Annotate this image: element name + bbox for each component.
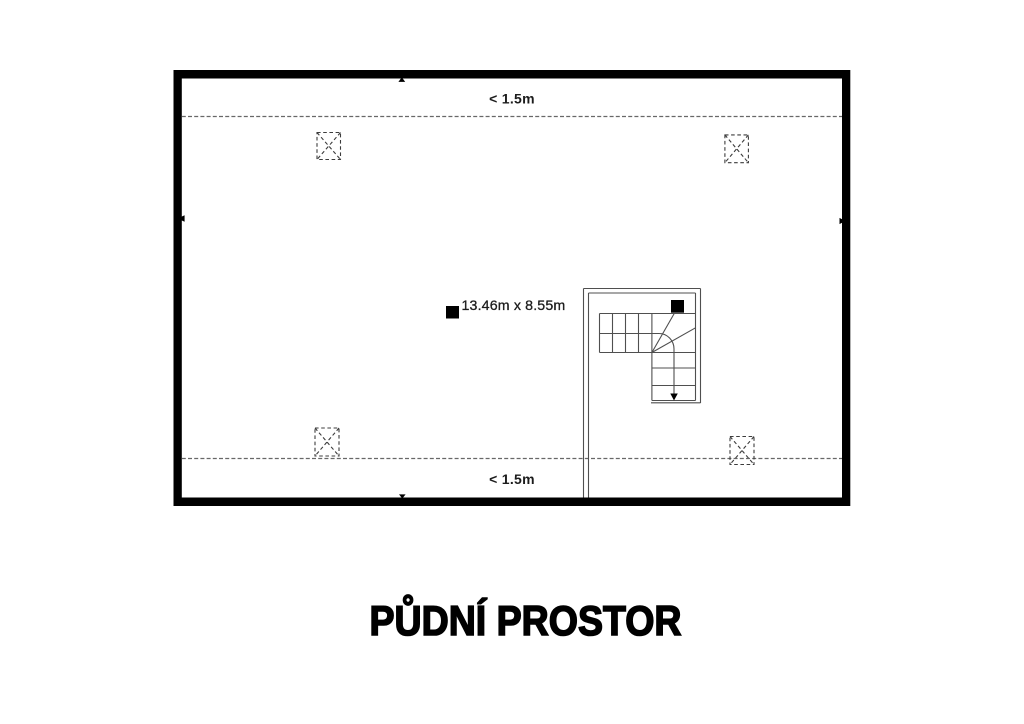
svg-text:13.46m x 8.55m: 13.46m x 8.55m	[462, 298, 566, 314]
svg-text:PŮDNÍ PROSTOR: PŮDNÍ PROSTOR	[370, 593, 682, 644]
svg-text:< 1.5m: < 1.5m	[489, 91, 535, 107]
svg-text:< 1.5m: < 1.5m	[489, 471, 535, 487]
